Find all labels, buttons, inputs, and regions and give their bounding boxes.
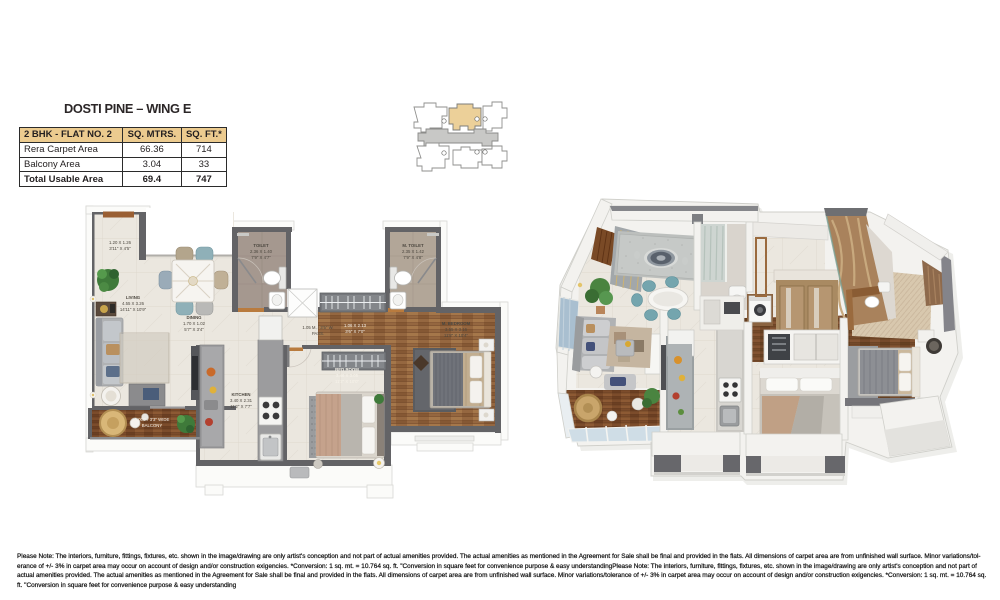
svg-text:11'8" X 10'4": 11'8" X 10'4" bbox=[444, 333, 468, 338]
svg-text:5'7" X 3'4": 5'7" X 3'4" bbox=[184, 327, 204, 332]
svg-text:DINING: DINING bbox=[186, 315, 202, 320]
svg-text:7'9" X 4'8": 7'9" X 4'8" bbox=[403, 255, 423, 260]
svg-text:1.05 M. / 3'5" W.: 1.05 M. / 3'5" W. bbox=[302, 325, 333, 330]
svg-text:1.20 X 1.26: 1.20 X 1.26 bbox=[109, 240, 132, 245]
svg-text:11'2" X 10'0": 11'2" X 10'0" bbox=[335, 379, 359, 384]
svg-text:3.55 X 3.16: 3.55 X 3.16 bbox=[445, 327, 468, 332]
svg-text:2.35 X 1.42: 2.35 X 1.42 bbox=[402, 249, 425, 254]
svg-text:M. TOILET: M. TOILET bbox=[402, 243, 424, 248]
svg-text:1.000' / 3'3" WIDE: 1.000' / 3'3" WIDE bbox=[135, 417, 170, 422]
svg-text:14'11" X 10'9": 14'11" X 10'9" bbox=[120, 307, 147, 312]
svg-text:TOILET: TOILET bbox=[253, 243, 269, 248]
svg-text:BALCONY: BALCONY bbox=[142, 423, 163, 428]
svg-text:1.70 X 1.02: 1.70 X 1.02 bbox=[183, 321, 206, 326]
svg-text:KITCHEN: KITCHEN bbox=[231, 392, 250, 397]
svg-text:3'6" X 7'0": 3'6" X 7'0" bbox=[345, 329, 365, 334]
svg-text:3'11" X 4'5": 3'11" X 4'5" bbox=[109, 246, 131, 251]
svg-text:3.40 X 2.31: 3.40 X 2.31 bbox=[230, 398, 253, 403]
svg-text:3.46 X 3.05: 3.46 X 3.05 bbox=[336, 373, 359, 378]
svg-text:2.36 X 1.40: 2.36 X 1.40 bbox=[250, 249, 273, 254]
svg-text:LIVING: LIVING bbox=[126, 295, 141, 300]
svg-text:BED ROOM: BED ROOM bbox=[335, 367, 359, 372]
svg-text:11'2" X 7'7": 11'2" X 7'7" bbox=[230, 404, 252, 409]
svg-text:1.06 X 2.13: 1.06 X 2.13 bbox=[344, 323, 367, 328]
svg-text:PASS.: PASS. bbox=[312, 331, 324, 336]
svg-text:7'9" X 4'7": 7'9" X 4'7" bbox=[251, 255, 271, 260]
svg-text:4.55 X 3.26: 4.55 X 3.26 bbox=[122, 301, 145, 306]
svg-text:M. BEDROOM: M. BEDROOM bbox=[442, 321, 471, 326]
